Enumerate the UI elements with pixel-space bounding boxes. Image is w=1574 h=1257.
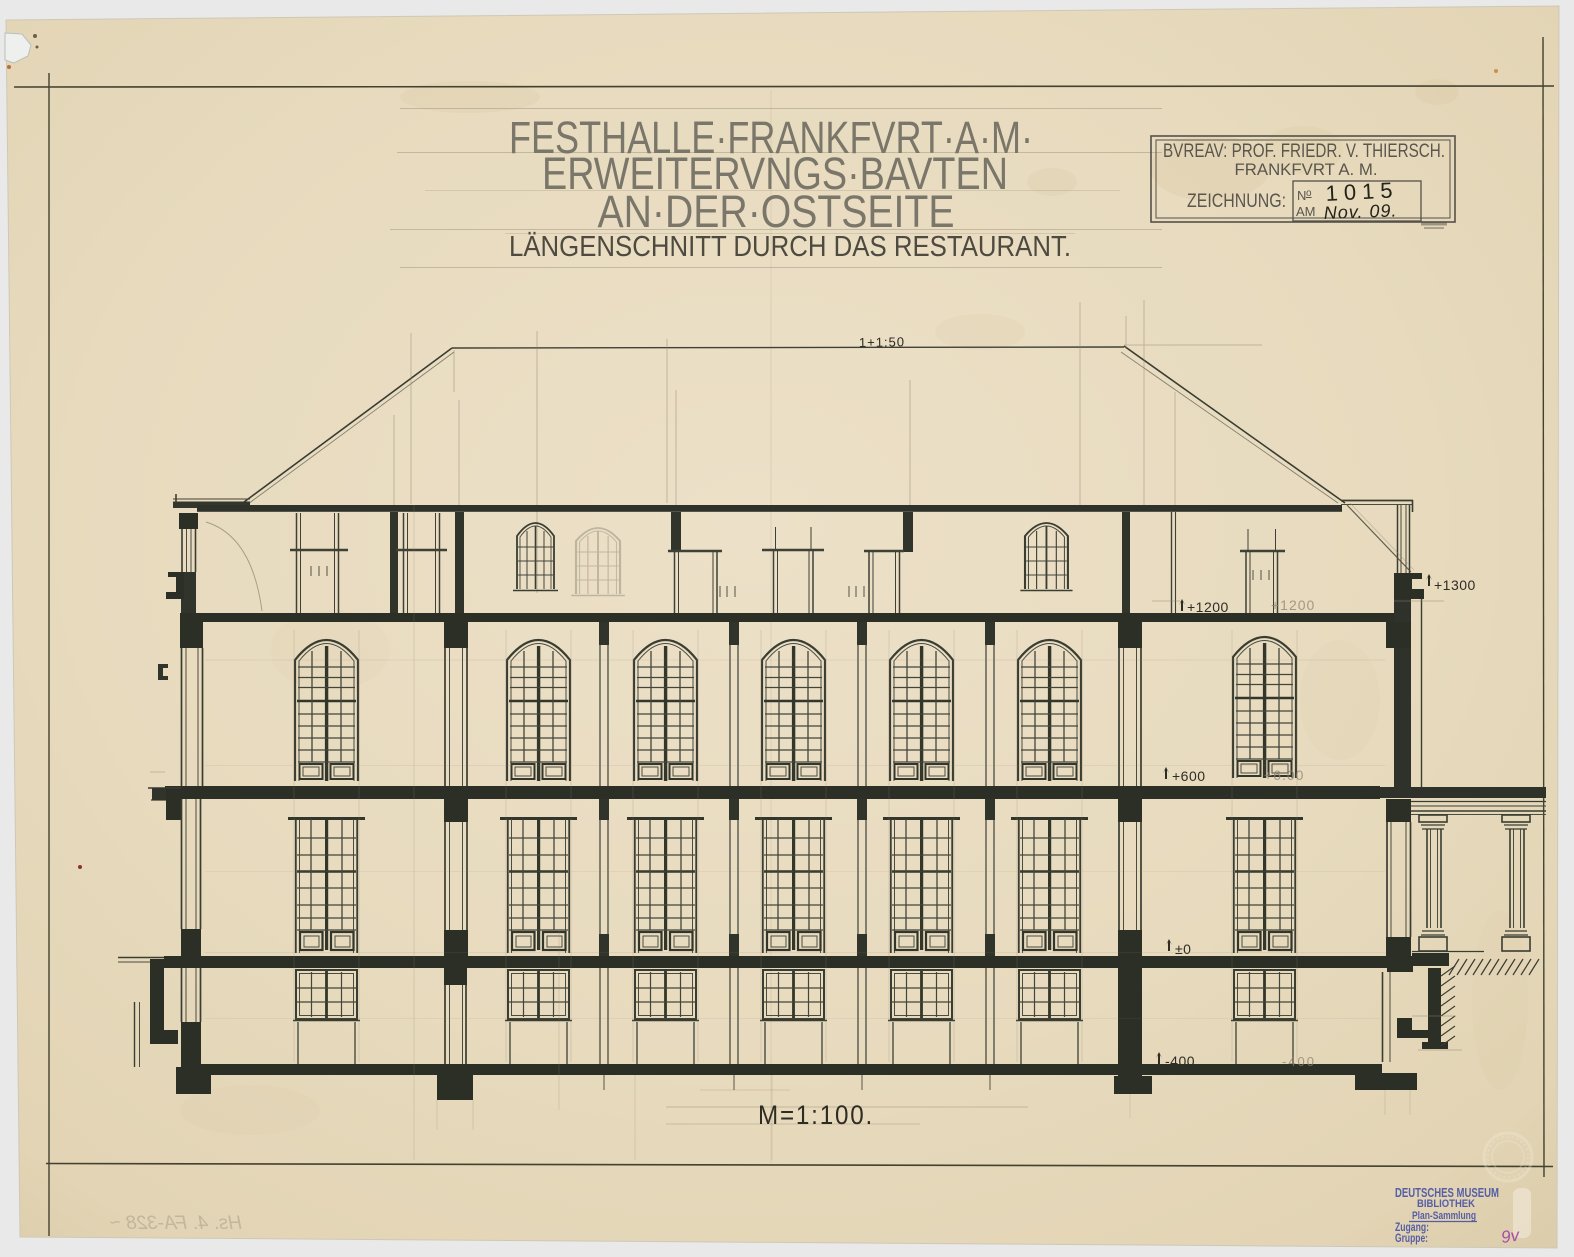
svg-text:BVREAV: PROF. FRIEDR. V. THIER: BVREAV: PROF. FRIEDR. V. THIERSCH. (1163, 141, 1445, 162)
svg-text:AN·DER·OSTSEITE: AN·DER·OSTSEITE (598, 186, 955, 237)
svg-text:M=1:100.: M=1:100. (758, 1100, 874, 1130)
svg-text:±0: ±0 (1175, 941, 1191, 957)
svg-text:AM: AM (1296, 204, 1316, 219)
svg-text:1+1:50: 1+1:50 (859, 334, 905, 350)
svg-text:N: N (1297, 188, 1306, 203)
svg-text:+6.00: +6.00 (1264, 767, 1304, 783)
svg-text:+1300: +1300 (1434, 577, 1476, 593)
svg-text:Plan-Sammlung: Plan-Sammlung (1412, 1210, 1476, 1222)
svg-text:Hs. 4. FA-328 ~: Hs. 4. FA-328 ~ (110, 1213, 242, 1234)
svg-text:ZEICHNUNG:: ZEICHNUNG: (1187, 190, 1286, 212)
svg-text:LÄNGENSCHNITT DURCH DAS RESTAU: LÄNGENSCHNITT DURCH DAS RESTAURANT. (509, 231, 1071, 263)
svg-text:FRANKFVRT A. M.: FRANKFVRT A. M. (1235, 161, 1378, 179)
svg-text:Gruppe:: Gruppe: (1395, 1233, 1428, 1245)
svg-text:-400: -400 (1165, 1053, 1195, 1069)
svg-text:+1200: +1200 (1187, 599, 1229, 615)
svg-text:o: o (1306, 188, 1312, 199)
svg-text:-400: -400 (1282, 1054, 1316, 1069)
svg-text:+1200: +1200 (1271, 597, 1315, 613)
svg-text:BIBLIOTHEK: BIBLIOTHEK (1417, 1198, 1475, 1210)
svg-text:+600: +600 (1172, 768, 1206, 784)
svg-text:Nov. 09.: Nov. 09. (1323, 200, 1397, 223)
